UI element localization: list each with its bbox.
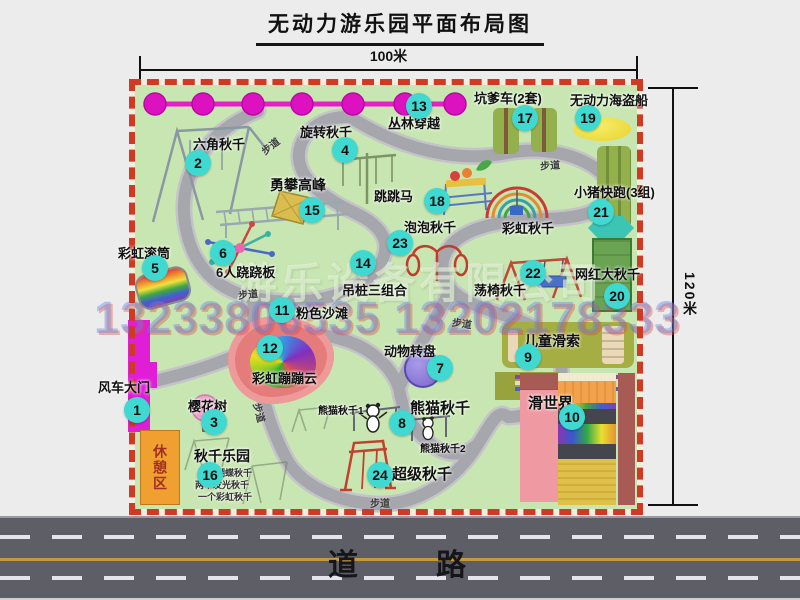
marker-5: 5 bbox=[142, 255, 168, 281]
label-panda-swing-2: 熊猫秋千2 bbox=[420, 440, 466, 455]
marker-3: 3 bbox=[201, 409, 227, 435]
label-windmill-gate: 风车大门 bbox=[98, 377, 150, 396]
marker-17: 17 bbox=[512, 105, 538, 131]
dimension-right-tick-bottom bbox=[648, 504, 698, 506]
marker-18: 18 bbox=[424, 188, 450, 214]
marker-19: 19 bbox=[575, 105, 601, 131]
label-pink-beach: 粉色沙滩 bbox=[296, 303, 348, 322]
road-label: 道 路 bbox=[0, 540, 800, 584]
label-pit-car: 坑爹车(2套) bbox=[474, 88, 542, 107]
marker-10: 10 bbox=[559, 404, 585, 430]
label-rainbow-swing: 彩虹秋千 bbox=[502, 218, 554, 237]
dimension-right-label: 120米 bbox=[680, 272, 700, 317]
marker-8: 8 bbox=[389, 410, 415, 436]
label-peak-climbing: 勇攀高峰 bbox=[270, 175, 326, 195]
marker-16: 16 bbox=[197, 462, 223, 488]
label-jumping-horse: 跳跳马 bbox=[374, 186, 413, 205]
label-panda-swing-1: 熊猫秋千1 bbox=[318, 402, 364, 417]
page-title-text: 无动力游乐园平面布局图 bbox=[256, 8, 544, 46]
marker-9: 9 bbox=[515, 344, 541, 370]
marker-11: 11 bbox=[269, 297, 295, 323]
marker-24: 24 bbox=[367, 462, 393, 488]
marker-15: 15 bbox=[299, 197, 325, 223]
marker-1: 1 bbox=[124, 397, 150, 423]
dimension-right-tick-top bbox=[648, 87, 698, 89]
slide-world-maroon-top bbox=[520, 373, 558, 389]
label-bubble-swing: 泡泡秋千 bbox=[404, 217, 456, 236]
marker-12: 12 bbox=[257, 335, 283, 361]
rest-area: 休憩区 bbox=[140, 430, 180, 505]
road: 道 路 bbox=[0, 516, 800, 598]
marker-6: 6 bbox=[210, 240, 236, 266]
label-piggy-run: 小猪快跑(3组) bbox=[574, 182, 655, 201]
marker-22: 22 bbox=[520, 260, 546, 286]
marker-4: 4 bbox=[332, 137, 358, 163]
label-panda-swing: 熊猫秋千 bbox=[410, 397, 470, 418]
label-swing-park-item-3: 一个彩虹秋千 bbox=[198, 490, 252, 503]
road-lane-dash-top bbox=[0, 535, 800, 539]
park-layout-page: 无动力游乐园平面布局图 100米 120米 bbox=[0, 0, 800, 600]
marker-20: 20 bbox=[604, 283, 630, 309]
label-swing-chair: 荡椅秋千 bbox=[474, 280, 526, 299]
marker-7: 7 bbox=[427, 355, 453, 381]
slide-world-maroon-strip bbox=[618, 373, 635, 505]
label-rainbow-cloud: 彩虹蹦蹦云 bbox=[252, 368, 317, 387]
path-label: 步道 bbox=[237, 285, 258, 302]
dimension-top-label: 100米 bbox=[140, 46, 637, 66]
marker-13: 13 bbox=[406, 93, 432, 119]
marker-23: 23 bbox=[387, 230, 413, 256]
label-hanging-pile-combo: 吊桩三组合 bbox=[342, 280, 407, 299]
label-animal-turntable: 动物转盘 bbox=[384, 341, 436, 360]
marker-14: 14 bbox=[350, 250, 376, 276]
marker-21: 21 bbox=[588, 199, 614, 225]
path-label: 步道 bbox=[540, 156, 561, 172]
label-big-swing: 网红大秋千 bbox=[575, 264, 640, 283]
path-label: 步道 bbox=[370, 495, 390, 510]
watermark-phone: 13233806535 13202178333 bbox=[94, 292, 680, 344]
windmill-gate-notch bbox=[150, 362, 157, 388]
path-label: 步道 bbox=[451, 314, 473, 332]
page-title: 无动力游乐园平面布局图 bbox=[0, 8, 800, 46]
rest-area-label: 休憩区 bbox=[150, 444, 170, 492]
marker-2: 2 bbox=[185, 150, 211, 176]
label-super-swing: 超级秋千 bbox=[392, 463, 452, 484]
dimension-top-line bbox=[140, 69, 637, 71]
